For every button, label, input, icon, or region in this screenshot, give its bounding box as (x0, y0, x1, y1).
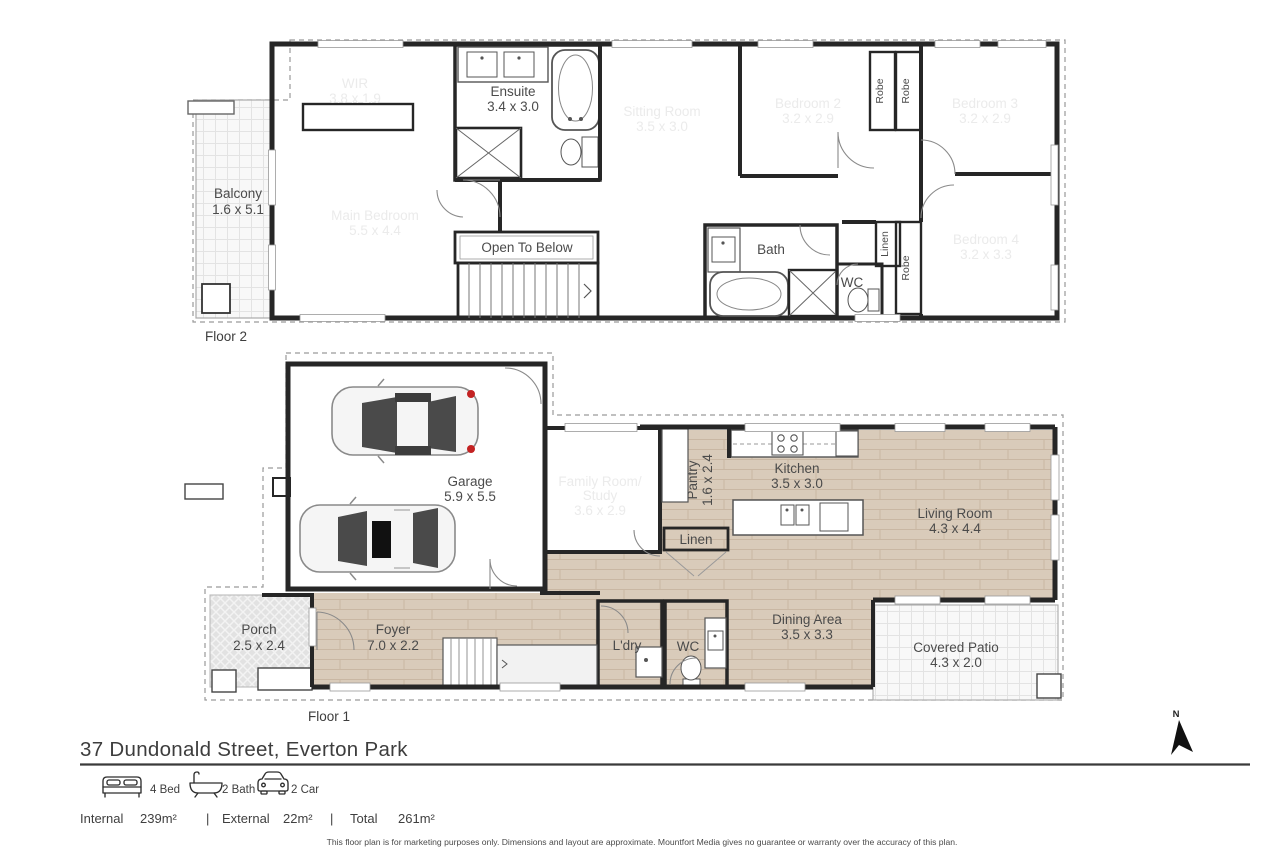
floor2-body (272, 44, 1057, 318)
bedroom2-door (838, 132, 874, 168)
wc-sink (708, 631, 723, 650)
dishwasher (820, 503, 848, 531)
main-bedroom-dims: 5.5 x 4.4 (349, 223, 401, 238)
pantry-dims: 1.6 x 2.4 (700, 454, 715, 506)
total-label: Total (350, 811, 378, 826)
dining-label: Dining Area (772, 612, 842, 627)
car-sports (332, 379, 478, 463)
linen-label-floor1: Linen (679, 532, 712, 547)
stair-treads (469, 263, 579, 318)
bedroom3-dims: 3.2 x 2.9 (959, 111, 1011, 126)
ensuite-dims: 3.4 x 3.0 (487, 99, 539, 114)
cars-label: 2 Car (291, 784, 319, 796)
external-label: External (222, 811, 270, 826)
pantry-label: Pantry (685, 460, 700, 499)
ensuite-toilet-tank (582, 137, 598, 167)
car-sedan (300, 497, 455, 580)
footer: 37 Dundonald Street, Everton Park 4 Bed … (80, 709, 1250, 847)
open-to-below-label: Open To Below (481, 240, 573, 255)
floorplan-page: WIR 3.8 x 1.9 Ensuite 3.4 x 3.0 Sitting … (0, 0, 1284, 856)
main-bedroom-door (463, 180, 500, 217)
stair-landing (497, 645, 597, 687)
family-room-dims: 3.6 x 2.9 (574, 503, 626, 518)
tub-tap (568, 117, 572, 121)
ensuite-label: Ensuite (490, 84, 535, 99)
disclaimer-text: This floor plan is for marketing purpose… (327, 837, 958, 847)
wc-toilet (848, 288, 868, 312)
family-room-label-2: Study (583, 488, 618, 503)
family-room-label-1: Family Room/ (558, 474, 642, 489)
ensuite-toilet (561, 139, 581, 165)
bedroom3-door (921, 140, 955, 174)
ensuite-bathtub (552, 50, 599, 130)
bedroom4-door (921, 185, 954, 218)
laundry-label: L'dry (613, 638, 642, 653)
patio-post (1037, 674, 1061, 698)
compass: N (1171, 709, 1193, 755)
patio-dims: 4.3 x 2.0 (930, 655, 982, 670)
porch-step (258, 668, 312, 690)
foyer-label: Foyer (376, 622, 411, 637)
linen-label-floor2: Linen (879, 231, 891, 257)
faucet-dot (517, 56, 520, 59)
patio-label: Covered Patio (913, 640, 999, 655)
island-sink-right (796, 505, 809, 525)
bedroom4-dims: 3.2 x 3.3 (960, 247, 1012, 262)
floor1-plan: Garage 5.9 x 5.5 Family Room/ Study 3.6 … (185, 353, 1063, 724)
bath-label: Bath (757, 242, 785, 257)
separator: | (206, 811, 209, 826)
living-room-label: Living Room (917, 506, 992, 521)
tub-tap (579, 117, 583, 121)
living-room-dims: 4.3 x 4.4 (929, 521, 981, 536)
faucet-dot (801, 509, 804, 512)
car-icon (258, 772, 288, 794)
floorplan-canvas: WIR 3.8 x 1.9 Ensuite 3.4 x 3.0 Sitting … (0, 0, 1284, 856)
floor2-boundary-dashed (193, 40, 1065, 322)
ensuite-sink-right (504, 52, 534, 77)
wir-label: WIR (342, 76, 368, 91)
internal-label: Internal (80, 811, 123, 826)
washer-dial (644, 658, 648, 662)
stove (772, 431, 803, 455)
wc-label-floor1: WC (677, 639, 700, 654)
wir-dims: 3.8 x 1.9 (329, 91, 381, 106)
balcony-dims: 1.6 x 5.1 (212, 202, 264, 217)
faucet-dot (714, 635, 717, 638)
bedroom4-label: Bedroom 4 (953, 232, 1020, 247)
floor2-label: Floor 2 (205, 329, 247, 344)
garage-label: Garage (447, 474, 492, 489)
faucet-dot (721, 241, 724, 244)
porch-label: Porch (241, 622, 276, 637)
wir-door (437, 190, 463, 217)
balcony-column (202, 284, 230, 313)
letterbox (185, 484, 223, 499)
toilet-floor1 (681, 656, 701, 680)
bedroom2-label: Bedroom 2 (775, 96, 841, 111)
robe1-label: Robe (874, 78, 886, 103)
bath-door (800, 225, 830, 255)
bath-bathtub (710, 272, 788, 316)
stairs-floor2 (458, 263, 598, 318)
area-summary: Internal 239m² | External 22m² | Total 2… (80, 811, 436, 826)
faucet-dot (786, 509, 789, 512)
island-sink-left (781, 505, 794, 525)
wc-toilet-tank (868, 289, 879, 311)
robe3-label: Robe (900, 255, 912, 280)
sitting-room-dims: 3.5 x 3.0 (636, 119, 688, 134)
floor2-windows (269, 41, 1059, 322)
garage-foyer-door (490, 559, 517, 589)
bedroom2-dims: 3.2 x 2.9 (782, 111, 834, 126)
wir-wardrobe (303, 104, 413, 130)
floor1-label: Floor 1 (308, 709, 350, 724)
dining-dims: 3.5 x 3.3 (781, 627, 833, 642)
north-label: N (1173, 709, 1180, 720)
stair-direction-arrow (584, 284, 591, 298)
porch-dims: 2.5 x 2.4 (233, 638, 285, 653)
shower-x (456, 128, 521, 178)
porch-post-left (212, 670, 236, 692)
bedroom3-label: Bedroom 3 (952, 96, 1018, 111)
wc-label-floor2: WC (841, 275, 864, 290)
address-title: 37 Dundonald Street, Everton Park (80, 738, 408, 761)
bed-icon (103, 777, 141, 797)
balcony-label: Balcony (214, 186, 262, 201)
kitchen-dims: 3.5 x 3.0 (771, 476, 823, 491)
internal-value: 239m² (140, 811, 178, 826)
garage-rear-door (505, 368, 541, 404)
beds-label: 4 Bed (150, 784, 180, 796)
tail-light (467, 390, 475, 398)
fridge (836, 431, 858, 456)
robe2-label: Robe (900, 78, 912, 103)
garage-dims: 5.9 x 5.5 (444, 489, 496, 504)
floor2-plan: WIR 3.8 x 1.9 Ensuite 3.4 x 3.0 Sitting … (188, 40, 1065, 344)
total-value: 261m² (398, 811, 436, 826)
separator: | (330, 811, 333, 826)
external-value: 22m² (283, 811, 313, 826)
baths-label: 2 Bath (222, 784, 255, 796)
sitting-room-label: Sitting Room (623, 104, 700, 119)
balcony-wall-segment (188, 101, 234, 114)
bath-icon (190, 772, 222, 797)
tail-light (467, 445, 475, 453)
kitchen-label: Kitchen (774, 461, 819, 476)
main-bedroom-label: Main Bedroom (331, 208, 419, 223)
ensuite-sink-left (467, 52, 497, 77)
north-arrow-icon (1171, 720, 1193, 755)
foyer-dims: 7.0 x 2.2 (367, 638, 419, 653)
shower-x (789, 270, 837, 316)
faucet-dot (480, 56, 483, 59)
bath-sink (712, 237, 735, 262)
